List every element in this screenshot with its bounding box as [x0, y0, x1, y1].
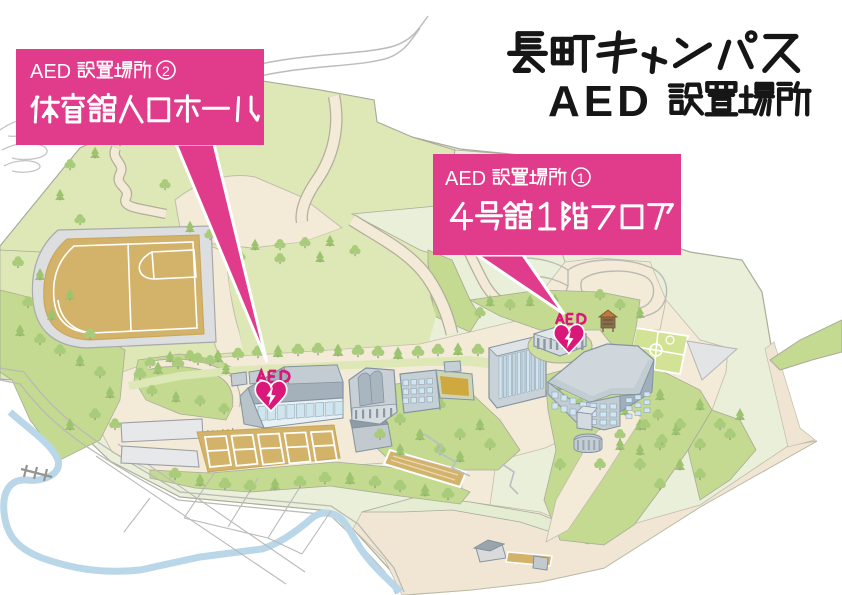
svg-text:AED: AED: [445, 168, 486, 190]
svg-text:AED: AED: [548, 77, 653, 126]
svg-text:2: 2: [162, 63, 170, 79]
svg-text:1: 1: [577, 170, 585, 186]
svg-text:AED: AED: [30, 61, 71, 83]
